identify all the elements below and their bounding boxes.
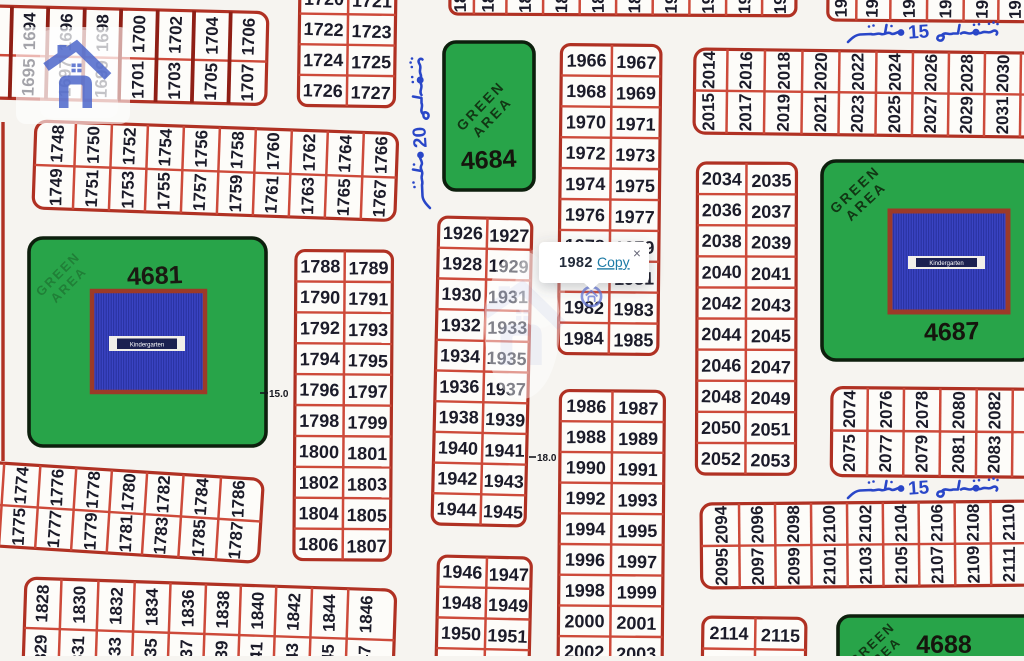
svg-text:1724: 1724: [303, 50, 343, 70]
svg-text:19: 19: [972, 0, 992, 19]
svg-text:2104: 2104: [891, 504, 911, 543]
svg-text:1975: 1975: [615, 176, 655, 196]
svg-text:1778: 1778: [83, 470, 105, 509]
svg-text:1973: 1973: [615, 145, 656, 166]
svg-text:15: 15: [907, 477, 930, 499]
svg-text:1758: 1758: [227, 131, 248, 170]
svg-text:1928: 1928: [442, 253, 483, 274]
svg-text:1760: 1760: [264, 132, 283, 170]
svg-text:1988: 1988: [566, 427, 606, 447]
svg-text:1804: 1804: [298, 503, 338, 524]
svg-text:2031: 2031: [993, 97, 1012, 135]
svg-text:1780: 1780: [118, 473, 140, 512]
svg-text:2053: 2053: [750, 450, 790, 471]
svg-text:2051: 2051: [750, 419, 790, 439]
svg-text:1992: 1992: [565, 488, 606, 509]
svg-text:2049: 2049: [750, 388, 790, 409]
svg-text:19: 19: [936, 0, 955, 19]
svg-text:1700: 1700: [129, 15, 149, 53]
svg-text:2027: 2027: [921, 96, 941, 134]
svg-text:1786: 1786: [228, 480, 248, 519]
svg-text:1722: 1722: [303, 19, 344, 40]
svg-text:1932: 1932: [441, 315, 481, 335]
svg-text:1763: 1763: [298, 177, 318, 215]
svg-text:2020: 2020: [811, 52, 831, 90]
svg-text:1999: 1999: [617, 582, 657, 602]
svg-text:2044: 2044: [701, 324, 741, 345]
svg-text:1991: 1991: [618, 459, 658, 480]
svg-text:2041: 2041: [751, 264, 791, 284]
svg-text:1783: 1783: [150, 516, 172, 555]
svg-text:2076: 2076: [876, 390, 896, 428]
svg-text:1994: 1994: [565, 519, 605, 539]
svg-text:1754: 1754: [155, 128, 176, 167]
svg-text:19: 19: [900, 0, 919, 18]
svg-text:1751: 1751: [82, 169, 103, 208]
svg-text:2096: 2096: [748, 505, 768, 543]
svg-text:2017: 2017: [736, 93, 755, 131]
svg-text:19: 19: [735, 0, 754, 14]
svg-text:1940: 1940: [438, 437, 479, 458]
svg-text:1702: 1702: [165, 16, 186, 55]
svg-text:1995: 1995: [617, 521, 657, 541]
svg-text:1779: 1779: [81, 512, 101, 551]
svg-text:2000: 2000: [564, 611, 604, 631]
svg-text:1807: 1807: [346, 536, 386, 557]
svg-text:2025: 2025: [885, 95, 904, 133]
svg-text:2043: 2043: [751, 295, 792, 316]
svg-text:1982: 1982: [559, 255, 593, 271]
svg-text:2040: 2040: [701, 262, 741, 283]
svg-text:1832: 1832: [106, 587, 127, 626]
svg-text:1798: 1798: [299, 411, 339, 431]
svg-text:1930: 1930: [441, 284, 482, 306]
svg-text:1934: 1934: [440, 345, 481, 366]
svg-text:1774: 1774: [10, 465, 32, 505]
svg-text:1976: 1976: [565, 205, 605, 226]
svg-text:1749: 1749: [46, 168, 66, 206]
svg-text:2046: 2046: [701, 355, 741, 375]
svg-text:1781: 1781: [116, 514, 137, 553]
svg-text:18: 18: [552, 0, 572, 13]
svg-text:1720: 1720: [304, 0, 344, 9]
svg-text:2074: 2074: [840, 390, 860, 429]
svg-text:1802: 1802: [299, 472, 339, 492]
svg-text:1993: 1993: [617, 490, 657, 511]
svg-text:1833: 1833: [105, 637, 125, 656]
svg-text:2030: 2030: [993, 54, 1013, 92]
svg-text:1796: 1796: [299, 380, 339, 401]
svg-text:1943: 1943: [483, 471, 524, 492]
svg-text:1707: 1707: [238, 64, 258, 102]
svg-text:1845: 1845: [317, 644, 338, 656]
svg-text:1947: 1947: [489, 565, 529, 585]
svg-text:18: 18: [625, 0, 644, 14]
svg-text:1830: 1830: [70, 586, 90, 624]
svg-text:2047: 2047: [751, 357, 791, 377]
svg-text:19: 19: [862, 0, 882, 18]
svg-text:1805: 1805: [347, 505, 387, 526]
svg-text:19: 19: [662, 0, 681, 14]
svg-text:2042: 2042: [701, 293, 741, 314]
svg-text:1945: 1945: [483, 501, 524, 523]
svg-text:2001: 2001: [616, 613, 657, 634]
svg-text:2107: 2107: [927, 546, 947, 584]
svg-text:1847: 1847: [355, 645, 374, 656]
svg-text:2080: 2080: [949, 391, 969, 429]
svg-text:1949: 1949: [488, 595, 529, 616]
svg-text:1946: 1946: [442, 561, 483, 582]
svg-text:1836: 1836: [178, 589, 197, 627]
svg-text:2078: 2078: [912, 391, 931, 429]
svg-text:2028: 2028: [958, 54, 977, 92]
svg-text:1791: 1791: [348, 289, 388, 310]
svg-text:1938: 1938: [439, 407, 479, 427]
svg-text:15.0: 15.0: [269, 389, 289, 400]
svg-text:1703: 1703: [165, 62, 184, 100]
svg-text:1944: 1944: [436, 499, 477, 521]
svg-text:2103: 2103: [856, 546, 876, 584]
svg-text:1986: 1986: [566, 396, 607, 417]
svg-text:2106: 2106: [927, 504, 946, 542]
svg-text:1996: 1996: [565, 550, 605, 571]
svg-text:2018: 2018: [775, 52, 794, 90]
svg-text:1803: 1803: [347, 474, 387, 494]
svg-text:1755: 1755: [154, 172, 174, 210]
svg-text:1777: 1777: [44, 510, 66, 549]
svg-text:2026: 2026: [921, 53, 941, 91]
svg-text:2016: 2016: [736, 51, 756, 89]
svg-text:1785: 1785: [189, 519, 210, 558]
svg-text:1725: 1725: [351, 52, 391, 72]
svg-text:1797: 1797: [348, 382, 388, 402]
svg-text:1762: 1762: [300, 134, 320, 172]
svg-text:1806: 1806: [298, 534, 339, 555]
svg-text:1984: 1984: [564, 328, 604, 349]
svg-text:1787: 1787: [225, 521, 247, 560]
svg-text:2052: 2052: [701, 449, 741, 469]
svg-text:2003: 2003: [616, 644, 656, 656]
svg-text:20: 20: [409, 126, 431, 149]
svg-text:1977: 1977: [614, 207, 654, 228]
svg-text:1939: 1939: [485, 409, 526, 431]
svg-text:2101: 2101: [820, 547, 839, 585]
svg-text:18: 18: [516, 0, 535, 13]
svg-text:1948: 1948: [442, 593, 482, 613]
svg-text:18: 18: [451, 0, 470, 13]
svg-text:1752: 1752: [119, 127, 140, 166]
svg-text:1997: 1997: [617, 551, 657, 572]
svg-text:1983: 1983: [613, 299, 654, 320]
svg-text:2100: 2100: [820, 505, 840, 543]
svg-text:Copy: Copy: [597, 254, 630, 270]
svg-text:1793: 1793: [348, 320, 388, 340]
svg-text:1969: 1969: [616, 83, 656, 103]
svg-text:1972: 1972: [565, 142, 606, 163]
svg-text:1990: 1990: [566, 457, 606, 478]
svg-text:1767: 1767: [369, 179, 390, 218]
svg-text:2037: 2037: [751, 201, 791, 222]
svg-text:1842: 1842: [283, 592, 304, 631]
svg-text:1800: 1800: [299, 441, 340, 462]
svg-text:4681: 4681: [126, 261, 183, 291]
svg-text:1936: 1936: [439, 377, 479, 397]
svg-text:1801: 1801: [347, 443, 388, 464]
svg-text:19: 19: [1006, 0, 1024, 19]
svg-text:2114: 2114: [709, 623, 749, 644]
svg-text:1705: 1705: [201, 63, 221, 102]
svg-text:1753: 1753: [118, 171, 137, 209]
svg-text:1766: 1766: [371, 136, 391, 174]
svg-text:2038: 2038: [702, 231, 742, 252]
svg-text:2095: 2095: [712, 548, 732, 586]
svg-text:1792: 1792: [300, 318, 340, 339]
svg-text:2075: 2075: [840, 434, 859, 472]
svg-text:15: 15: [907, 21, 930, 43]
svg-text:1788: 1788: [300, 256, 340, 276]
svg-text:1840: 1840: [248, 592, 268, 630]
svg-text:2094: 2094: [711, 505, 731, 544]
svg-text:2039: 2039: [751, 232, 791, 253]
svg-text:2081: 2081: [949, 435, 969, 473]
svg-text:1764: 1764: [335, 134, 356, 173]
svg-text:2029: 2029: [957, 96, 977, 134]
svg-text:×: ×: [633, 246, 641, 261]
svg-text:1704: 1704: [203, 16, 222, 55]
svg-text:19: 19: [699, 0, 718, 14]
svg-text:1761: 1761: [261, 175, 282, 214]
svg-text:1989: 1989: [618, 429, 658, 449]
svg-text:2097: 2097: [748, 547, 768, 585]
svg-text:1971: 1971: [615, 114, 655, 135]
svg-text:2034: 2034: [702, 169, 742, 190]
svg-text:1985: 1985: [613, 331, 653, 351]
svg-text:18: 18: [589, 0, 608, 13]
svg-text:2022: 2022: [848, 53, 867, 91]
svg-text:2019: 2019: [774, 94, 794, 132]
svg-text:Kindergarten: Kindergarten: [929, 261, 963, 267]
svg-text:1775: 1775: [9, 507, 30, 546]
svg-text:1837: 1837: [177, 639, 197, 656]
svg-text:1721: 1721: [352, 0, 392, 12]
svg-text:1951: 1951: [487, 625, 528, 647]
svg-text:18: 18: [479, 0, 498, 13]
svg-text:2024: 2024: [885, 53, 904, 92]
svg-text:2035: 2035: [751, 170, 791, 191]
svg-text:1765: 1765: [334, 178, 355, 217]
svg-text:1829: 1829: [31, 634, 50, 656]
svg-text:1966: 1966: [566, 50, 606, 70]
svg-text:2077: 2077: [876, 434, 896, 472]
svg-text:2036: 2036: [702, 200, 742, 220]
svg-text:1846: 1846: [356, 595, 377, 634]
svg-text:1759: 1759: [226, 174, 246, 212]
svg-text:1790: 1790: [300, 287, 340, 308]
svg-text:2105: 2105: [892, 546, 911, 584]
svg-text:2102: 2102: [856, 505, 876, 543]
svg-text:1756: 1756: [192, 130, 212, 168]
svg-text:1927: 1927: [489, 226, 529, 246]
svg-text:1782: 1782: [153, 475, 174, 514]
svg-text:19: 19: [832, 0, 851, 18]
svg-text:1998: 1998: [565, 580, 605, 601]
svg-text:2050: 2050: [701, 418, 741, 439]
svg-text:1970: 1970: [566, 112, 606, 132]
svg-text:1843: 1843: [282, 643, 302, 656]
svg-text:1941: 1941: [484, 441, 524, 461]
svg-text:1795: 1795: [348, 350, 389, 371]
svg-text:1776: 1776: [47, 468, 68, 507]
svg-text:1757: 1757: [190, 173, 211, 212]
svg-text:1968: 1968: [566, 81, 607, 102]
svg-text:2108: 2108: [964, 504, 983, 542]
svg-text:4688: 4688: [916, 631, 972, 656]
svg-text:2109: 2109: [964, 545, 984, 583]
svg-text:2023: 2023: [847, 95, 867, 133]
svg-text:1789: 1789: [348, 258, 388, 279]
svg-text:1794: 1794: [299, 349, 339, 370]
svg-text:2015: 2015: [699, 93, 718, 131]
svg-text:2099: 2099: [784, 547, 803, 585]
svg-text:1723: 1723: [351, 21, 392, 42]
svg-text:2002: 2002: [564, 641, 604, 656]
svg-text:18.0: 18.0: [537, 453, 557, 464]
svg-text:2014: 2014: [699, 50, 719, 89]
svg-text:1828: 1828: [32, 584, 53, 623]
svg-text:19: 19: [771, 0, 790, 14]
svg-text:1748: 1748: [47, 124, 68, 163]
svg-text:1834: 1834: [142, 588, 161, 627]
svg-text:1841: 1841: [246, 641, 267, 656]
svg-text:1701: 1701: [129, 61, 148, 99]
svg-text:2045: 2045: [751, 326, 791, 347]
svg-text:2079: 2079: [912, 435, 931, 473]
svg-text:1838: 1838: [213, 590, 234, 629]
svg-text:2021: 2021: [811, 94, 830, 132]
svg-text:1835: 1835: [140, 638, 161, 656]
svg-text:1844: 1844: [320, 593, 340, 632]
svg-text:1926: 1926: [443, 223, 483, 243]
svg-text:2048: 2048: [701, 386, 742, 407]
svg-text:Kindergarten: Kindergarten: [130, 343, 164, 349]
svg-text:2082: 2082: [985, 391, 1004, 429]
svg-text:2110: 2110: [999, 504, 1019, 541]
svg-text:1727: 1727: [350, 82, 391, 103]
svg-text:4684: 4684: [460, 145, 517, 176]
svg-text:1706: 1706: [239, 17, 259, 55]
svg-text:4687: 4687: [923, 317, 980, 347]
svg-text:1831: 1831: [68, 635, 89, 656]
svg-text:1784: 1784: [191, 477, 213, 517]
svg-text:1987: 1987: [618, 398, 659, 419]
svg-text:1942: 1942: [437, 468, 477, 488]
svg-text:2083: 2083: [984, 435, 1004, 473]
svg-text:1974: 1974: [565, 174, 605, 194]
svg-text:1799: 1799: [347, 412, 387, 433]
svg-text:2111: 2111: [1000, 546, 1019, 582]
svg-text:1839: 1839: [211, 640, 232, 656]
svg-text:1967: 1967: [616, 52, 657, 73]
svg-text:2115: 2115: [761, 625, 801, 646]
svg-text:1750: 1750: [84, 126, 104, 164]
svg-text:2098: 2098: [784, 505, 803, 543]
svg-text:1726: 1726: [303, 80, 343, 101]
svg-text:1950: 1950: [441, 623, 482, 645]
